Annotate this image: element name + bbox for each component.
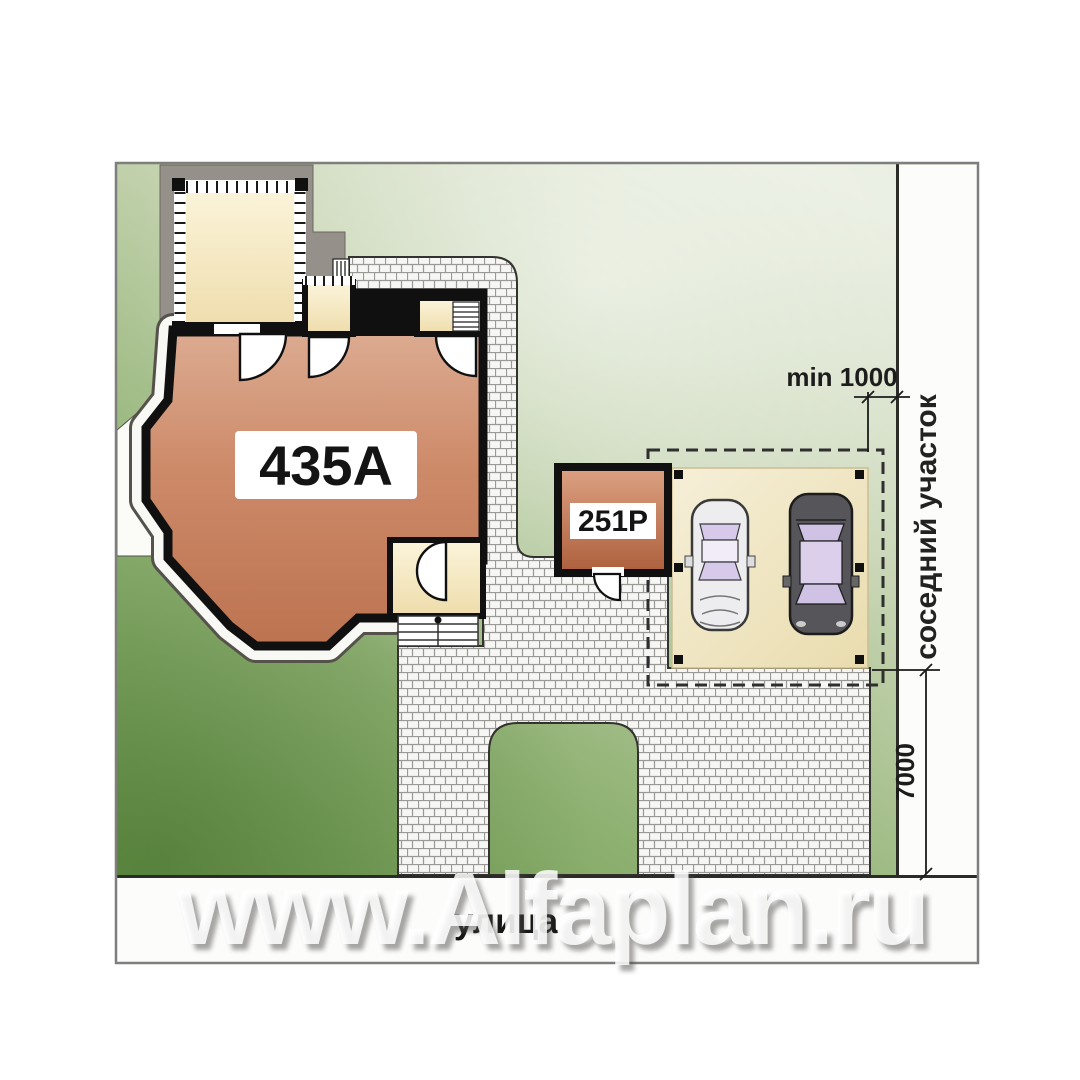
car-light: [685, 500, 755, 630]
dimension-min-setback-text: min 1000: [786, 362, 897, 392]
vestibule-room: [303, 276, 355, 334]
house-label: 435A: [235, 431, 417, 499]
watermark-text: www.Alfaplan.ru: [176, 852, 927, 966]
car-dark: [783, 494, 859, 634]
house-label-text: 435A: [259, 434, 393, 497]
dimension-side-depth-text: 7000: [890, 743, 920, 801]
entry-room: [417, 298, 483, 334]
bay-window-room: [172, 178, 314, 336]
neighbor-plot-label: соседний участок: [910, 393, 943, 659]
site-plan-screenshot: 435A 251P min 1000 7000 соседн: [0, 0, 1080, 1080]
site-plan-svg: 435A 251P min 1000 7000 соседн: [0, 0, 1080, 1080]
garage-label-text: 251P: [578, 505, 648, 538]
interior-wall: [350, 290, 420, 336]
